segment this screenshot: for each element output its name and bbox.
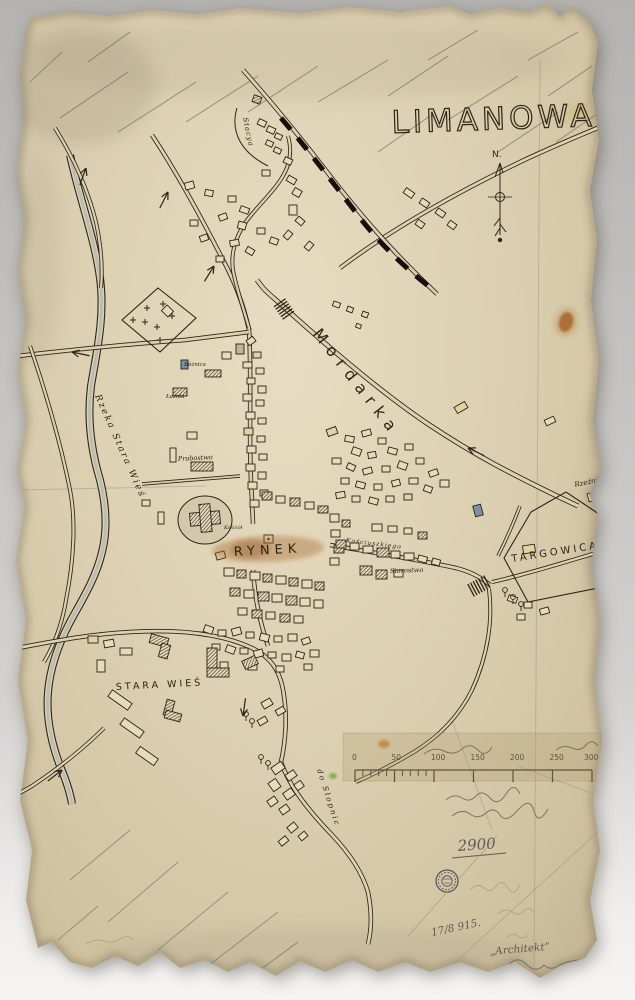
photo-background: N.LIMANOWA050100150200250300 M.StacyaMor…: [0, 0, 635, 1000]
building: [218, 213, 228, 221]
building: [205, 370, 221, 377]
building: [418, 532, 427, 539]
building: [314, 600, 323, 608]
building: [256, 368, 264, 374]
building: [136, 746, 159, 765]
tree-symbol: [503, 588, 508, 593]
building: [199, 504, 212, 533]
building: [361, 311, 368, 318]
building: [346, 306, 353, 313]
handwriting-squiggle: [506, 934, 528, 938]
building: [276, 496, 285, 503]
building: [332, 458, 341, 464]
building: [170, 448, 176, 462]
building: [256, 400, 264, 406]
building: [524, 602, 532, 608]
building: [404, 494, 412, 500]
building: [403, 188, 415, 199]
building: [243, 362, 252, 368]
building: [330, 558, 339, 565]
building: [258, 592, 269, 601]
tree-symbol: [259, 755, 264, 760]
road-surface: [152, 135, 249, 330]
flow-arrow-head: [213, 266, 214, 274]
building: [207, 648, 217, 670]
building: [341, 478, 349, 484]
building: [289, 205, 297, 215]
map-title: LIMANOWA: [391, 98, 596, 141]
building: [290, 498, 300, 506]
building: [454, 401, 468, 413]
building: [231, 627, 242, 636]
map-paper: N.LIMANOWA050100150200250300 M.StacyaMor…: [0, 0, 635, 1000]
building: [216, 256, 224, 262]
paper-stain: [582, 400, 610, 640]
building: [346, 463, 356, 472]
building: [295, 216, 305, 226]
building: [240, 648, 248, 654]
building: [274, 133, 282, 140]
building: [237, 221, 247, 230]
paper-stain: [40, 20, 560, 100]
pencil-hatch-stroke: [108, 862, 178, 922]
building: [158, 512, 164, 524]
building: [279, 804, 290, 815]
building: [238, 608, 247, 615]
building: [286, 175, 297, 185]
map-mark: [476, 580, 483, 592]
tree-symbol: [266, 761, 271, 766]
building: [447, 220, 457, 230]
building: [237, 570, 246, 578]
bridge-hatch: [468, 576, 490, 597]
building: [280, 614, 290, 622]
building: [318, 506, 328, 513]
building: [332, 301, 340, 308]
building: [262, 492, 272, 500]
map-mark: [498, 238, 502, 242]
building: [259, 454, 267, 460]
building: [248, 482, 257, 489]
building: [336, 491, 346, 498]
building: [289, 578, 298, 586]
building: [108, 690, 132, 710]
building: [283, 230, 293, 240]
building: [544, 416, 556, 426]
building: [164, 710, 182, 722]
building: [304, 241, 314, 251]
building: [97, 660, 105, 672]
building: [416, 458, 424, 464]
building: [236, 344, 244, 354]
building: [304, 664, 312, 670]
paper-shadow-wrap: N.LIMANOWA050100150200250300 M.StacyaMor…: [0, 0, 635, 1000]
pencil-hatch-stroke: [548, 66, 592, 96]
building: [253, 352, 261, 358]
paper-stain: [378, 740, 390, 748]
building: [272, 594, 282, 602]
building: [360, 566, 372, 575]
building: [368, 497, 378, 505]
building: [120, 648, 132, 655]
paper-crease: [408, 836, 497, 936]
building: [440, 480, 449, 487]
building: [286, 596, 297, 605]
map-mark: [495, 228, 500, 236]
building: [355, 323, 361, 328]
building: [142, 500, 150, 506]
building: [205, 189, 214, 196]
building: [269, 237, 279, 245]
tape-strip: [343, 733, 601, 781]
building: [387, 447, 397, 455]
building: [244, 428, 253, 435]
building: [473, 504, 484, 517]
building: [258, 386, 266, 393]
building: [336, 540, 346, 548]
building: [361, 429, 371, 437]
building: [388, 526, 397, 532]
tree-symbol: [250, 719, 255, 724]
building: [345, 435, 355, 442]
map-label: STARA WIEŚ: [116, 676, 204, 693]
building: [330, 514, 339, 522]
building: [276, 576, 286, 584]
building: [247, 446, 256, 453]
building: [352, 496, 360, 502]
building: [300, 598, 310, 606]
building: [376, 570, 387, 579]
map-mark: [494, 218, 500, 226]
road-casing: [30, 346, 73, 662]
building: [268, 652, 276, 658]
building: [222, 352, 231, 359]
building: [295, 651, 304, 659]
map-mark: [442, 876, 452, 886]
paper-crease: [20, 486, 206, 490]
map-mark: [470, 583, 477, 595]
building: [362, 467, 372, 475]
handwriting-squiggle: [470, 882, 520, 892]
building: [244, 590, 254, 598]
building: [294, 616, 303, 623]
building: [378, 438, 386, 444]
building: [326, 427, 338, 437]
building: [257, 716, 268, 726]
building: [103, 639, 114, 648]
building: [374, 484, 382, 490]
road-surface: [142, 476, 240, 484]
map-label: Stacya: [241, 117, 255, 148]
building: [190, 220, 198, 226]
building: [252, 610, 262, 618]
building: [274, 636, 282, 642]
building: [266, 612, 275, 619]
building: [539, 607, 549, 615]
handwriting-squiggle: [498, 908, 534, 914]
road-casing: [330, 545, 490, 585]
building: [276, 666, 284, 672]
building: [391, 479, 400, 487]
building: [246, 632, 254, 638]
building: [428, 469, 439, 478]
building: [262, 170, 270, 176]
building: [120, 718, 144, 738]
building: [310, 650, 319, 657]
building: [220, 662, 228, 668]
map-mark: [438, 872, 455, 889]
building: [245, 246, 255, 255]
road-casing: [152, 135, 249, 330]
paper-stain: [16, 150, 60, 370]
building: [288, 634, 297, 641]
building: [382, 466, 390, 472]
building: [423, 485, 433, 493]
building: [228, 196, 236, 202]
building: [386, 496, 394, 502]
building: [224, 568, 234, 576]
handwriting-squiggle: [446, 788, 520, 802]
building: [250, 572, 260, 580]
building: [258, 418, 266, 424]
building: [282, 654, 291, 661]
building: [184, 181, 195, 190]
building: [199, 234, 209, 242]
building: [517, 614, 525, 620]
building: [187, 432, 197, 439]
building: [207, 668, 229, 677]
building: [397, 461, 408, 471]
building: [258, 472, 266, 479]
building: [257, 228, 265, 234]
building: [259, 633, 270, 642]
north-label: N.: [492, 150, 502, 160]
map-label: Starostwo: [390, 566, 424, 575]
building: [405, 444, 413, 450]
building: [191, 462, 213, 471]
building: [404, 528, 412, 534]
building: [243, 394, 252, 401]
building: [247, 378, 255, 384]
road-surface: [257, 280, 578, 506]
building: [230, 588, 240, 596]
building: [315, 582, 324, 590]
flow-arrow-head: [86, 168, 87, 176]
building: [266, 126, 276, 135]
map-mark: [473, 581, 480, 593]
building: [230, 239, 240, 246]
map-mark: [468, 584, 475, 596]
building: [404, 553, 414, 560]
map-mark: [500, 224, 506, 232]
building: [409, 478, 418, 484]
building: [419, 198, 430, 208]
map-label: Łaźnia: [165, 393, 184, 400]
tree-symbol: [519, 602, 524, 607]
building: [372, 524, 382, 531]
map-label: Bóżnica: [183, 361, 206, 368]
building: [278, 836, 289, 846]
map-label: Kościół: [223, 524, 243, 531]
building: [342, 520, 350, 527]
flow-arrow-head: [241, 708, 243, 716]
building: [88, 636, 98, 643]
map-label: Mordarka: [309, 325, 405, 440]
building: [302, 580, 312, 588]
building: [415, 219, 425, 229]
building: [435, 208, 446, 218]
paper-stain: [100, 929, 540, 981]
building: [246, 464, 255, 471]
building: [267, 796, 278, 807]
building: [257, 119, 267, 128]
building: [351, 447, 362, 457]
building: [239, 206, 250, 215]
building: [218, 630, 226, 636]
pencil-hatch-stroke: [70, 830, 130, 880]
paper-stain: [329, 773, 337, 779]
building: [287, 822, 298, 833]
paper-crease: [534, 60, 540, 990]
building: [305, 502, 314, 509]
building: [331, 530, 340, 537]
building: [301, 637, 311, 645]
building: [377, 548, 389, 557]
pencil-hatch-stroke: [58, 906, 98, 940]
scale-number-note: 2900: [456, 834, 497, 855]
building: [292, 187, 302, 197]
building: [368, 451, 377, 458]
map-drawing: N.LIMANOWA050100150200250300 M.StacyaMor…: [0, 0, 635, 1000]
building: [298, 831, 308, 841]
building: [273, 147, 281, 154]
north-arrow: N.: [488, 150, 512, 242]
building: [391, 551, 400, 558]
building: [261, 698, 273, 709]
round-stamp: [436, 870, 458, 892]
building: [225, 645, 236, 655]
road-surface: [30, 346, 73, 662]
building: [268, 778, 281, 791]
building: [250, 500, 259, 507]
railway-dashes: [281, 118, 436, 292]
building: [265, 140, 273, 147]
building: [355, 481, 365, 489]
building: [257, 436, 265, 442]
map-mark: [436, 870, 458, 892]
building: [263, 574, 272, 582]
building: [246, 412, 255, 419]
road-casing: [257, 280, 578, 506]
